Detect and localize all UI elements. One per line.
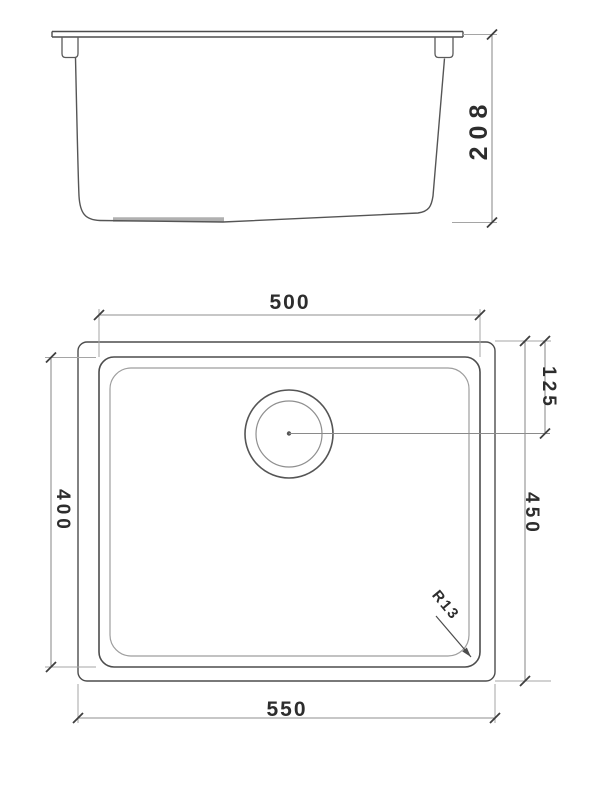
front-view	[52, 30, 497, 228]
dim-height-label: 208	[466, 91, 492, 167]
dim-overall-width-label: 550	[257, 697, 317, 721]
plan-bowl-top-edge	[99, 357, 480, 667]
plan-outer-rim	[78, 342, 495, 681]
plan-dim-bowl-width	[94, 309, 485, 357]
front-rim-flange	[52, 32, 463, 38]
drawing-linework	[0, 0, 606, 800]
ext-line	[99, 309, 480, 357]
plan-bowl-bottom-edge	[110, 368, 469, 656]
dim-drain-offset-label: 125	[537, 355, 561, 421]
front-bowl-outline	[76, 58, 445, 223]
dim-bowl-depth-label: 400	[51, 478, 75, 544]
technical-drawing-sheet: 208 500 125 400 450 550 R13	[0, 0, 606, 800]
dim-overall-depth-label: 450	[520, 481, 544, 547]
plan-view	[45, 309, 551, 723]
front-right-clip	[435, 37, 453, 58]
dim-bowl-width-label: 500	[260, 290, 320, 314]
front-left-clip	[62, 37, 78, 58]
